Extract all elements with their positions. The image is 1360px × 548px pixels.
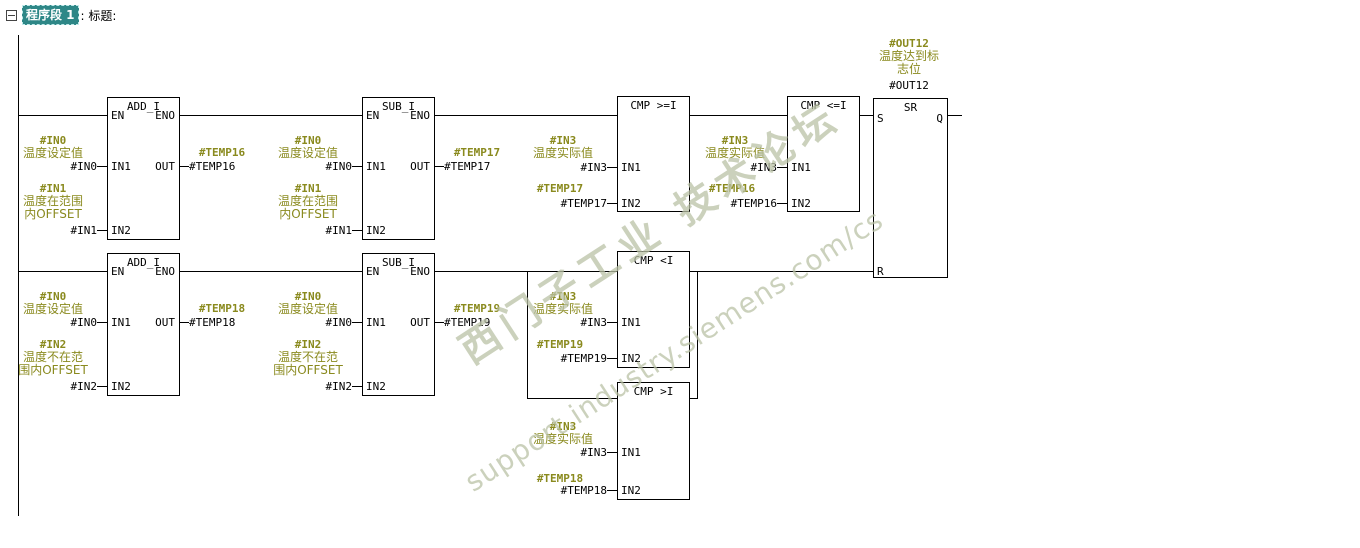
collapse-icon[interactable] (6, 10, 17, 21)
symbol-comment: 温度实际值 (473, 303, 653, 316)
wire (777, 167, 787, 168)
wire (352, 230, 362, 231)
wire (607, 167, 617, 168)
wire (607, 452, 617, 453)
pin-IN2: IN2 (366, 381, 386, 393)
pin-IN1: IN1 (111, 317, 131, 329)
operand-label[interactable]: #TEMP16 (627, 197, 777, 210)
wire (607, 490, 617, 491)
symbol-comment: 围内OFFSET (0, 364, 143, 377)
wire (180, 115, 362, 116)
wire (180, 322, 189, 323)
wire (352, 166, 362, 167)
symbol-comment: #TEMP16 (642, 182, 822, 195)
pin-EN: EN (111, 266, 124, 278)
wire (527, 398, 617, 399)
network-header: 程序段 1: 标题: (6, 5, 116, 23)
operand-label[interactable]: #IN0 (202, 160, 352, 173)
operand-label[interactable]: #TEMP19 (457, 352, 607, 365)
wire (435, 166, 444, 167)
pin-ENO: ENO (155, 266, 175, 278)
pin-IN2: IN2 (791, 198, 811, 210)
wire (352, 322, 362, 323)
symbol-comment: 温度设定值 (218, 303, 398, 316)
operand-label[interactable]: #TEMP17 (457, 197, 607, 210)
wire (690, 271, 873, 272)
wire (352, 386, 362, 387)
minus-glyph (8, 15, 15, 16)
pin-R: R (877, 266, 884, 278)
operand-label[interactable]: #TEMP18 (457, 484, 607, 497)
operand-label[interactable]: #IN0 (202, 316, 352, 329)
pin-OUT: OUT (155, 161, 175, 173)
wire (97, 322, 107, 323)
pin-IN1: IN1 (111, 161, 131, 173)
pin-S: S (877, 113, 884, 125)
pin-EN: EN (111, 110, 124, 122)
symbol-comment: 志位 (819, 63, 999, 76)
wire (697, 271, 698, 398)
symbol-comment: #TEMP19 (470, 338, 650, 351)
symbol-comment: 温度实际值 (645, 147, 825, 160)
operand-label[interactable]: #IN3 (457, 316, 607, 329)
operand-label[interactable]: #IN0 (0, 316, 97, 329)
operand-label[interactable]: #IN2 (0, 380, 97, 393)
wire (690, 398, 698, 399)
pin-IN2: IN2 (621, 353, 641, 365)
pin-IN2: IN2 (111, 225, 131, 237)
wire (607, 203, 617, 204)
pin-IN1: IN1 (366, 317, 386, 329)
wire (18, 115, 107, 116)
symbol-comment: 围内OFFSET (218, 364, 398, 377)
wire (435, 322, 444, 323)
pin-IN2: IN2 (111, 381, 131, 393)
wire (97, 166, 107, 167)
pin-IN1: IN1 (621, 317, 641, 329)
pin-IN1: IN1 (621, 447, 641, 459)
pin-ENO: ENO (155, 110, 175, 122)
pin-Q: Q (936, 113, 943, 125)
operand-label[interactable]: #IN1 (202, 224, 352, 237)
wire (180, 166, 189, 167)
operand-label[interactable]: #IN1 (0, 224, 97, 237)
wire (97, 386, 107, 387)
block-sr-flipflop[interactable]: SRSQR (873, 98, 948, 278)
symbol-comment: #TEMP17 (470, 182, 650, 195)
pin-EN: EN (366, 266, 379, 278)
block-title: CMP <I (618, 254, 689, 267)
symbol-comment: 温度实际值 (473, 433, 653, 446)
wire (18, 271, 107, 272)
block-title: CMP >=I (618, 99, 689, 112)
pin-EN: EN (366, 110, 379, 122)
lad-editor-canvas: 程序段 1: 标题: ADD_IENENOIN1IN2OUTSUB_IENENO… (0, 0, 1360, 548)
operand-label[interactable]: #IN3 (457, 161, 607, 174)
symbol-comment: 温度设定值 (0, 303, 143, 316)
wire (777, 203, 787, 204)
pin-ENO: ENO (410, 110, 430, 122)
wire (97, 230, 107, 231)
wire (607, 322, 617, 323)
wire (860, 115, 873, 116)
pin-IN1: IN1 (791, 162, 811, 174)
pin-ENO: ENO (410, 266, 430, 278)
pin-OUT: OUT (410, 317, 430, 329)
network-title-suffix: : 标题: (81, 9, 117, 23)
wire (948, 115, 962, 116)
operand-label[interactable]: #IN0 (0, 160, 97, 173)
wire (607, 358, 617, 359)
pin-IN2: IN2 (366, 225, 386, 237)
operand-label[interactable]: #IN2 (202, 380, 352, 393)
symbol-comment: 内OFFSET (0, 208, 143, 221)
symbol-comment: 温度设定值 (0, 147, 143, 160)
wire (435, 271, 617, 272)
wire (18, 35, 19, 516)
wire (435, 115, 617, 116)
operand-label[interactable]: #IN3 (457, 446, 607, 459)
pin-OUT: OUT (155, 317, 175, 329)
operand-label[interactable]: #OUT12 (819, 79, 999, 92)
wire (690, 115, 787, 116)
block-title: CMP <=I (788, 99, 859, 112)
pin-OUT: OUT (410, 161, 430, 173)
pin-IN1: IN1 (366, 161, 386, 173)
pin-IN2: IN2 (621, 485, 641, 497)
symbol-comment: 内OFFSET (218, 208, 398, 221)
network-title[interactable]: 程序段 1 (22, 5, 79, 25)
symbol-comment: 温度设定值 (218, 147, 398, 160)
operand-label[interactable]: #IN3 (627, 161, 777, 174)
symbol-comment: 温度实际值 (473, 147, 653, 160)
block-title: CMP >I (618, 385, 689, 398)
wire (180, 271, 362, 272)
